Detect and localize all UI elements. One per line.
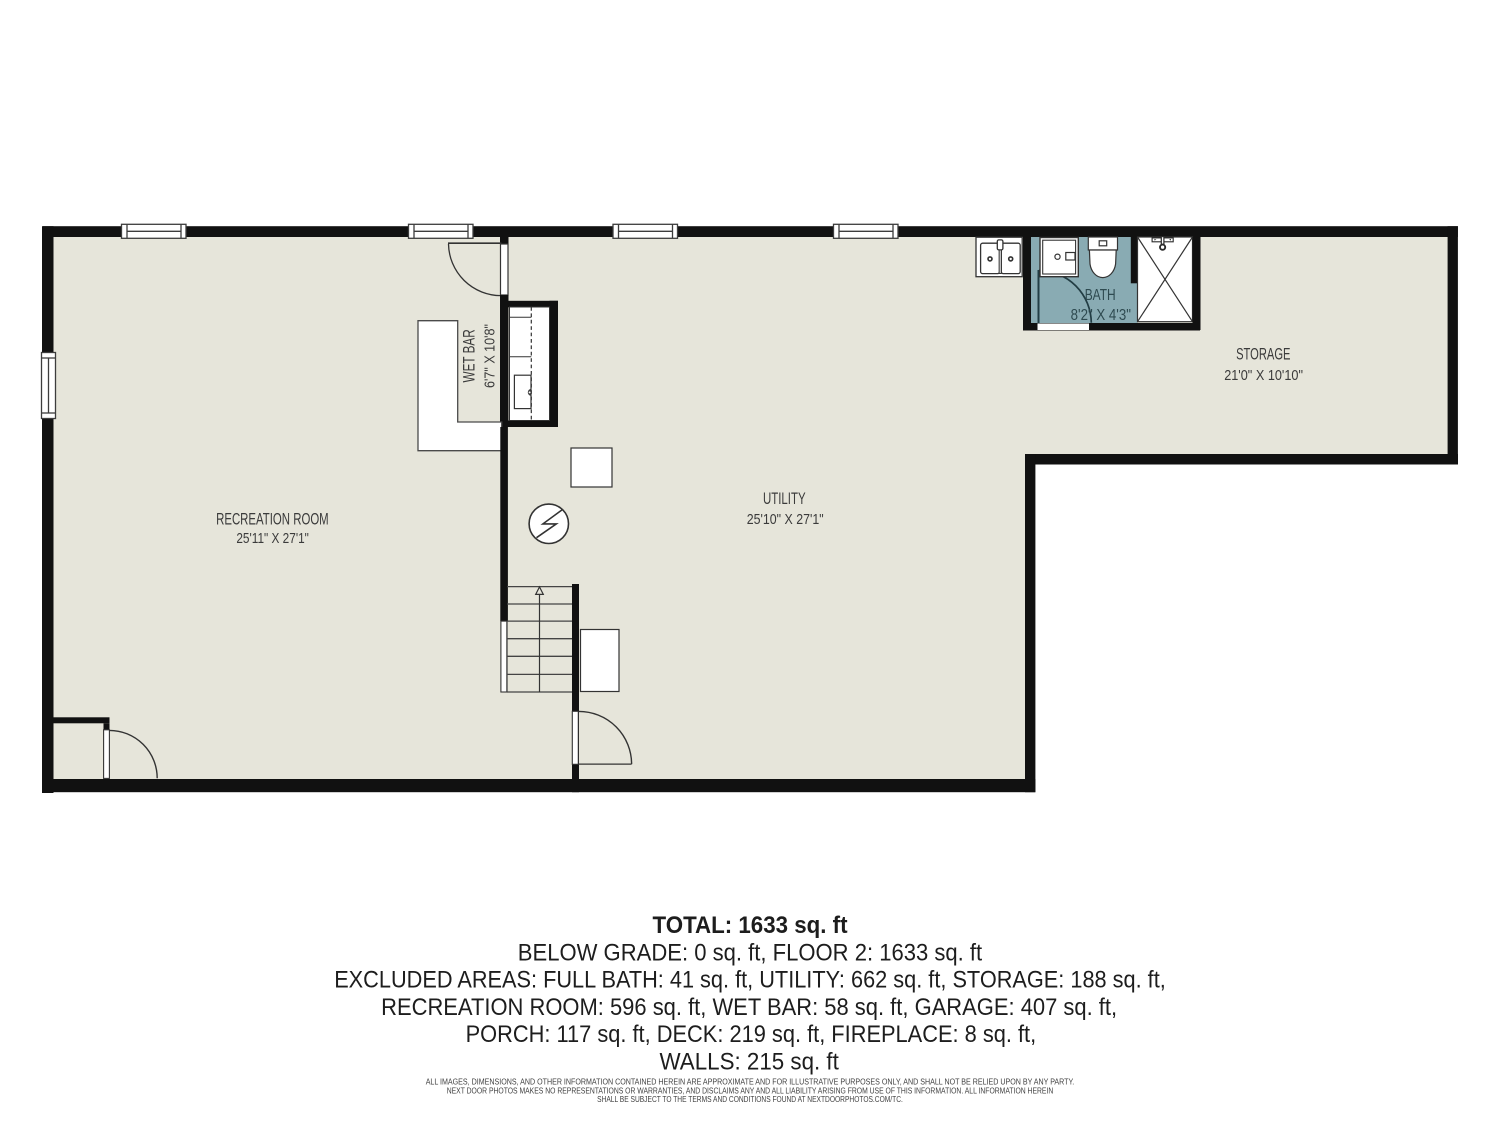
svg-text:STORAGE: STORAGE — [1236, 344, 1290, 363]
svg-text:WET BAR: WET BAR — [460, 329, 479, 382]
svg-text:8'2" X 4'3": 8'2" X 4'3" — [1071, 307, 1131, 324]
svg-text:RECREATION ROOM: 596 sq. ft, W: RECREATION ROOM: 596 sq. ft, WET BAR: 58… — [381, 994, 1117, 1021]
svg-text:RECREATION ROOM: RECREATION ROOM — [216, 510, 329, 529]
svg-text:SHALL BE SUBJECT TO THE TERMS: SHALL BE SUBJECT TO THE TERMS AND CONDIT… — [597, 1094, 903, 1104]
svg-text:UTILITY: UTILITY — [763, 489, 806, 508]
svg-text:WALLS: 215 sq. ft: WALLS: 215 sq. ft — [660, 1049, 839, 1076]
svg-text:PORCH: 117 sq. ft, DECK: 219 s: PORCH: 117 sq. ft, DECK: 219 sq. ft, FIR… — [466, 1021, 1037, 1048]
svg-text:25'11" X 27'1": 25'11" X 27'1" — [236, 530, 309, 547]
svg-text:25'10" X 27'1": 25'10" X 27'1" — [747, 511, 824, 528]
svg-text:TOTAL: 1633 sq. ft: TOTAL: 1633 sq. ft — [653, 912, 848, 939]
svg-text:EXCLUDED AREAS: FULL BATH: 41: EXCLUDED AREAS: FULL BATH: 41 sq. ft, UT… — [334, 967, 1166, 994]
svg-text:21'0" X 10'10": 21'0" X 10'10" — [1224, 367, 1303, 384]
svg-text:BELOW GRADE: 0 sq. ft, FLOOR 2: BELOW GRADE: 0 sq. ft, FLOOR 2: 1633 sq.… — [518, 939, 983, 966]
svg-text:6'7" X 10'8": 6'7" X 10'8" — [482, 324, 499, 388]
svg-text:BATH: BATH — [1085, 287, 1116, 304]
